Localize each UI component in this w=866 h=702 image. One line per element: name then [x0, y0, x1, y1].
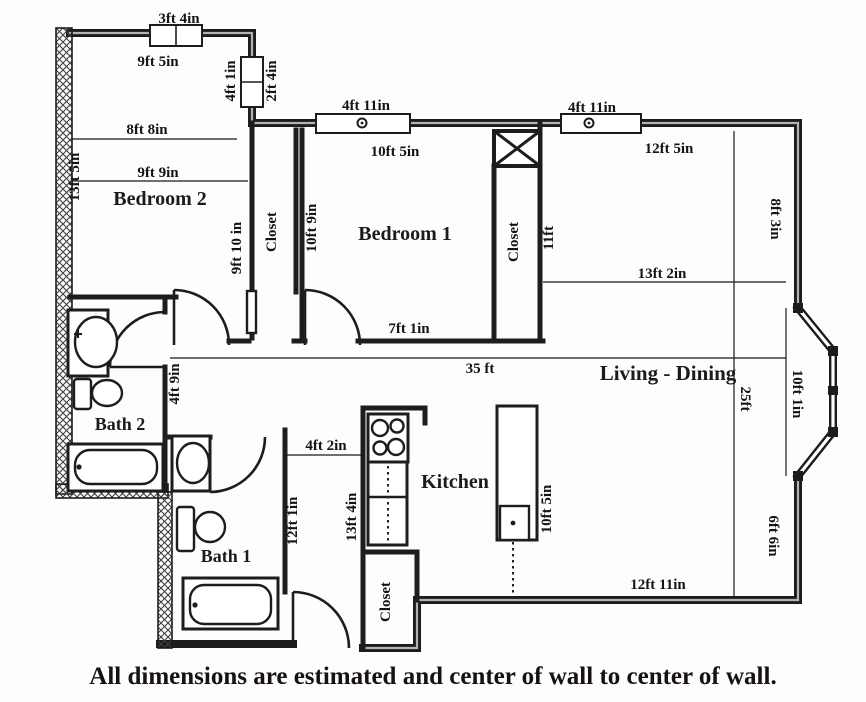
dim-label-25ft: 25ft	[737, 387, 753, 412]
dim-label-6ft6in: 6ft 6in	[765, 515, 781, 557]
dim-label-island-10ft5in: 10ft 5in	[539, 484, 555, 533]
window-side-4ft1in	[241, 57, 263, 107]
window-bedroom1-4ft11in	[316, 114, 410, 133]
dim-label-10ft1in: 10ft 1in	[789, 370, 805, 419]
dim-label-10ft9in: 10ft 9in	[304, 203, 320, 252]
room-label-bath1: Bath 1	[201, 546, 252, 566]
door-closet1-leaf	[247, 291, 256, 333]
dim-label-4ft9in: 4ft 9in	[167, 363, 183, 405]
dim-label-top-window: 3ft 4in	[158, 11, 200, 27]
dim-label-bed1-top: 10ft 5in	[371, 144, 420, 160]
dim-label-9ft9in: 9ft 9in	[137, 165, 179, 181]
dim-label-7ft1in: 7ft 1in	[388, 321, 430, 337]
dim-label-4ft1in: 4ft 1in	[223, 60, 239, 102]
kitchen-counter	[368, 462, 407, 545]
dim-label-13ft4in: 13ft 4in	[344, 492, 360, 541]
dim-label-12ft1in: 12ft 1in	[285, 496, 301, 545]
room-label-kitchen: Kitchen	[421, 471, 489, 493]
hatched-left-wall	[56, 28, 72, 494]
dim-label-top-width: 9ft 5in	[137, 54, 179, 70]
bath2-toilet	[74, 379, 122, 409]
room-label-bedroom1: Bedroom 1	[358, 223, 452, 245]
dim-label-12ft11in: 12ft 11in	[630, 577, 686, 593]
bath1-sink	[172, 436, 210, 491]
room-label-closet1: Closet	[264, 212, 280, 252]
window-top-3ft4in	[150, 25, 202, 46]
dim-label-4ft2in: 4ft 2in	[305, 438, 347, 454]
room-label-bedroom2: Bedroom 2	[113, 188, 207, 210]
dim-label-bed1-window: 4ft 11in	[342, 98, 391, 114]
window-living-4ft11in	[561, 114, 641, 133]
room-label-bath2: Bath 2	[95, 414, 146, 434]
room-label-closet2: Closet	[506, 222, 522, 262]
floor-plan: 3ft 4in 9ft 5in 8ft 8in 9ft 9in 13ft 5in…	[0, 0, 866, 702]
caption-text: All dimensions are estimated and center …	[89, 663, 776, 690]
dim-label-8ft8in: 8ft 8in	[126, 122, 168, 138]
kitchen-stove	[368, 414, 408, 462]
room-label-closet3: Closet	[378, 582, 394, 622]
dim-label-13ft5in: 13ft 5in	[67, 152, 83, 201]
dim-label-35ft: 35 ft	[466, 361, 495, 377]
dim-label-13ft2in: 13ft 2in	[638, 266, 687, 282]
dim-label-ld-window: 4ft 11in	[568, 100, 617, 116]
bath2-bathtub	[68, 444, 163, 491]
bath1-bathtub	[183, 578, 278, 629]
floor-plan-page: 3ft 4in 9ft 5in 8ft 8in 9ft 9in 13ft 5in…	[0, 0, 866, 702]
dim-label-2ft4in: 2ft 4in	[264, 60, 280, 102]
dim-label-12ft5in: 12ft 5in	[645, 141, 694, 157]
dim-label-9ft10in: 9ft 10 in	[229, 221, 245, 274]
room-label-living-dining: Living - Dining	[600, 361, 737, 385]
dim-label-8ft3in: 8ft 3in	[767, 198, 783, 240]
shaft-x-box	[494, 131, 540, 166]
hatched-bath1-left-wall	[158, 492, 172, 648]
dim-label-11ft: 11ft	[541, 226, 557, 250]
